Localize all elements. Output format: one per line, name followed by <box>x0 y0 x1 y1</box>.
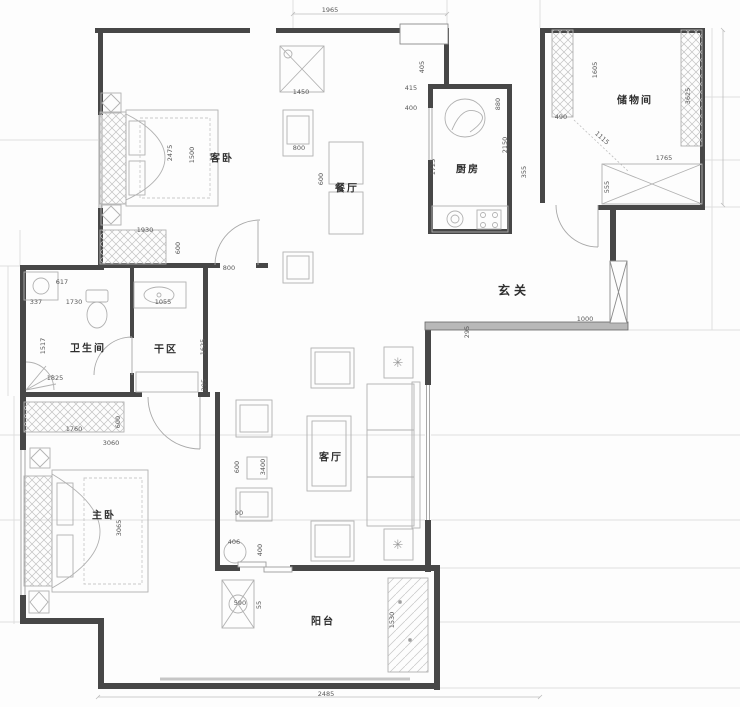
wall-balcony-right <box>434 565 440 690</box>
guest-ac-unit-bottom <box>101 205 121 225</box>
wall-kitchen-top <box>428 84 512 89</box>
wall-foyer-bottom <box>425 322 628 330</box>
guest-door <box>215 220 260 265</box>
tv-cabinet-bottom <box>236 488 272 521</box>
ceiling-vent <box>400 24 448 44</box>
wall-balcony-left <box>98 620 104 689</box>
plant-icon: ✳ <box>393 538 404 553</box>
balcony-cabinet <box>388 578 428 672</box>
wall-dry-right <box>203 265 208 397</box>
dry-cabinet <box>136 372 198 392</box>
windows <box>20 108 433 595</box>
wall-kitchen-left-a <box>428 84 433 108</box>
bath-door <box>94 337 132 375</box>
grid-lines <box>0 0 740 688</box>
wall-bath-divider-b <box>130 373 134 395</box>
plant-stand-bottom: ✳ <box>384 529 413 560</box>
floorplan-canvas: ✳ ✳ 客卧餐厅厨房储物间玄关卫生间干区主卧客厅阳台19651450405415… <box>0 0 740 707</box>
kitchen-window <box>428 108 433 160</box>
wall-kitchen-bottom <box>428 229 512 234</box>
kitchen-counter <box>432 206 508 232</box>
wall-storage-left <box>540 28 545 203</box>
storage-wardrobe-right <box>681 30 702 146</box>
coffee-table <box>307 416 351 491</box>
sofa <box>367 382 420 528</box>
wall-entry-stub <box>610 205 616 261</box>
wall-dry-bottom <box>20 392 142 397</box>
furniture: ✳ ✳ <box>24 24 702 679</box>
dining-cabinet <box>283 110 313 156</box>
balcony-sliding-door <box>238 562 292 572</box>
wall-guest-top <box>95 28 250 33</box>
floorplan-drawing: ✳ ✳ <box>0 0 740 707</box>
wall-master-right <box>215 392 220 570</box>
bath-sink <box>24 272 58 300</box>
dining-fixture <box>280 46 324 92</box>
wall-master-bottom <box>20 618 104 624</box>
floor-mat-top <box>311 348 354 388</box>
guest-ac-unit-top <box>101 93 121 113</box>
wall-bath-top <box>20 265 104 270</box>
storage-wardrobe-left <box>552 30 573 117</box>
wall-master-top-stub <box>198 392 210 397</box>
storage-cabinet-bottom <box>602 164 702 204</box>
side-chair <box>224 541 246 563</box>
wall-bath-divider-a <box>130 268 134 338</box>
doors <box>94 205 627 572</box>
storage-door <box>556 205 598 247</box>
shower <box>26 362 56 390</box>
hall-cabinet <box>283 252 313 283</box>
tv-cabinet-top <box>236 400 272 437</box>
floor-mat-bottom <box>311 521 354 561</box>
master-door <box>148 397 200 449</box>
tv-unit <box>247 457 267 479</box>
wall-balcony-top-b <box>290 565 437 571</box>
master-bed <box>24 470 148 592</box>
washing-machine <box>222 580 254 628</box>
master-ac-unit-bottom <box>29 591 49 613</box>
guest-bed <box>100 110 218 206</box>
plant-icon: ✳ <box>393 356 404 371</box>
plant-stand-top: ✳ <box>384 347 413 378</box>
wall-bath-left <box>20 265 26 395</box>
fridge <box>445 99 485 137</box>
wall-balcony-bottom <box>98 683 440 689</box>
dry-vanity <box>134 282 186 308</box>
master-ac-unit-top <box>30 448 50 468</box>
guest-wardrobe <box>100 230 166 264</box>
living-window <box>425 385 431 520</box>
toilet <box>86 290 108 328</box>
wall-master-left-b <box>20 595 26 624</box>
master-wardrobe <box>24 402 124 432</box>
entry-door <box>610 261 627 323</box>
wall-guest-left-a <box>98 28 103 118</box>
dining-table <box>329 142 363 234</box>
